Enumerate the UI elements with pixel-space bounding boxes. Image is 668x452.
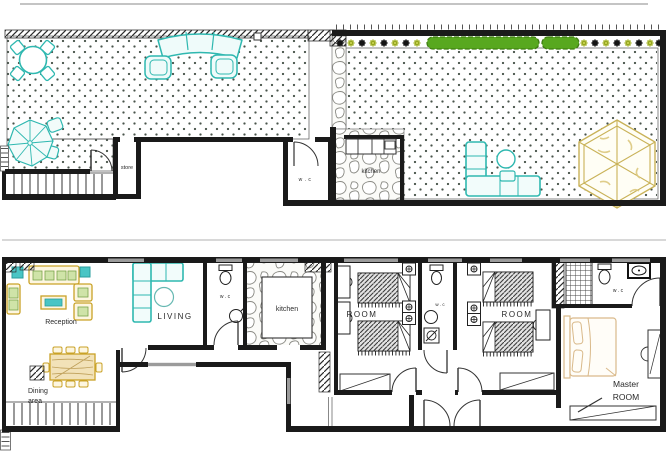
shower-grid <box>566 262 592 306</box>
hedge-left <box>427 37 539 49</box>
toilet <box>219 265 232 271</box>
bed <box>358 321 410 354</box>
room-right-label: ROOM <box>502 310 533 319</box>
stairs-lower <box>6 402 116 425</box>
dining-label-1: Dining <box>28 388 48 395</box>
nightstand <box>468 314 481 326</box>
wc-main: w . c <box>214 265 244 345</box>
ladder-lower <box>1 430 11 450</box>
reception-label: Reception <box>45 319 77 326</box>
lower-plan: Reception LIVING w . c <box>1 257 667 450</box>
nightstand <box>468 263 481 275</box>
wc-main-label: w . c <box>220 294 231 300</box>
master-wc: w . c <box>598 263 660 306</box>
nightstand <box>403 313 416 325</box>
living-label: LIVING <box>157 312 192 321</box>
round-table <box>155 288 174 307</box>
master-label-2: ROOM <box>613 392 639 402</box>
master-bedroom: Master ROOM <box>564 316 662 420</box>
floor-plan-canvas: store w . c <box>0 0 668 452</box>
sink <box>230 310 243 323</box>
bedroom-right: ROOM <box>458 263 554 392</box>
wc-shared-label: w . c <box>435 302 445 307</box>
wc-shared: w . c <box>424 265 447 373</box>
dining-area: Dining area <box>28 347 102 405</box>
upper-plan: store w . c <box>1 27 667 208</box>
reception-area: Reception <box>4 262 92 326</box>
store-room: store <box>120 137 134 171</box>
wc-upper-label: w . c <box>299 177 312 183</box>
bedroom-left: ROOM <box>337 263 416 392</box>
toilet <box>430 265 443 271</box>
wc-master-label: w . c <box>613 288 624 294</box>
ladder-upper <box>1 146 9 171</box>
sink <box>425 311 438 324</box>
nightstand <box>403 263 416 275</box>
bedside-table <box>536 310 550 340</box>
store-label: store <box>121 165 133 171</box>
outdoor-kitchen: kitchen <box>332 129 404 200</box>
stone-path <box>332 36 346 129</box>
hedge-right <box>542 37 579 49</box>
bed <box>483 322 533 355</box>
bed-headboard <box>564 316 570 378</box>
nightstand <box>403 301 416 313</box>
bed <box>483 272 533 305</box>
side-table <box>80 267 90 277</box>
wall-marker <box>254 33 261 40</box>
wc-room-upper: w . c <box>294 142 318 183</box>
master-label-1: Master <box>613 379 639 389</box>
floor-plan-sheet: store w . c <box>0 0 668 452</box>
toilet <box>598 264 611 270</box>
kitchen-label: kitchen <box>276 306 298 313</box>
nightstand <box>468 302 481 314</box>
living-area: LIVING <box>133 263 193 322</box>
entrance-doors <box>424 400 480 426</box>
hatched-wall-top <box>5 30 308 38</box>
kitchen-upper-label: kitchen <box>361 169 380 175</box>
room-left-label: ROOM <box>347 310 378 319</box>
